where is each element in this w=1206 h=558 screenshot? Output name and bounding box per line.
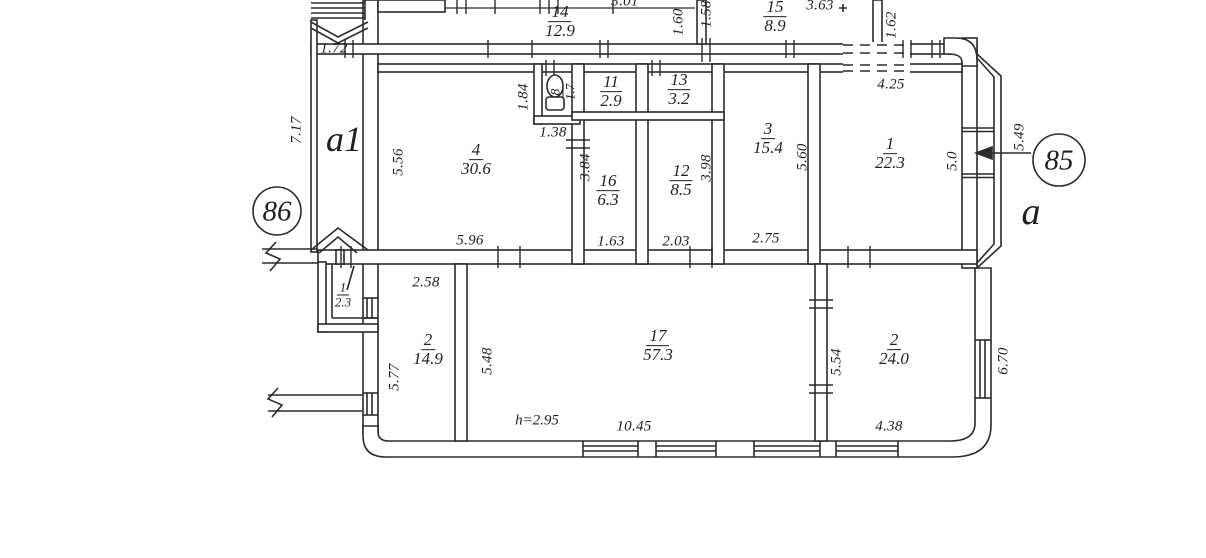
room-area: 57.3 <box>643 347 673 365</box>
room-number: 2 <box>887 331 902 350</box>
plus-mark <box>839 4 847 12</box>
room-number: 1 <box>883 135 898 154</box>
room-label-14: 14 12.9 <box>545 3 575 41</box>
room-label-13: 13 3.2 <box>668 71 691 109</box>
room-area: 8.5 <box>670 182 691 200</box>
dim-room16-left: 3.84 <box>579 153 594 180</box>
room-area: 8.9 <box>764 18 785 36</box>
room-label-8: 8 1.7 <box>548 84 577 100</box>
room-area: 6.3 <box>597 192 618 210</box>
dim-corridor-162: 1.62 <box>885 11 900 38</box>
room-label-11: 11 2.9 <box>600 73 622 111</box>
dim-a1-width: 1.72 <box>320 42 347 57</box>
room-number: 14 <box>549 3 572 22</box>
dim-room15-width: 3.63 <box>806 0 833 14</box>
ceiling-height-note: h=2.95 <box>515 414 559 429</box>
room-number: 3 <box>761 120 776 139</box>
dim-room17-left: 5.48 <box>481 347 496 374</box>
room-label-2-left: 2 14.9 <box>413 331 443 369</box>
axis-marker-86: 86 <box>263 198 292 227</box>
room-area: 2.9 <box>600 93 621 111</box>
dim-room17-bottom: 10.45 <box>616 420 651 435</box>
room-label-17: 17 57.3 <box>643 327 673 365</box>
room-number: 11 <box>600 73 622 92</box>
room-label-2-right: 2 24.0 <box>879 331 909 369</box>
floor-plan-canvas: 86 85 a1 a 14 12.9 15 8.9 8 1.7 11 2.9 1… <box>0 0 1206 558</box>
room-area: 22.3 <box>875 155 905 173</box>
room-number: 12 <box>670 162 693 181</box>
section-letter-a1: a1 <box>326 121 362 157</box>
dim-a1-height: 7.17 <box>290 116 305 143</box>
room-number: 15 <box>764 0 787 18</box>
room-area: 15.4 <box>753 140 783 158</box>
room-label-12: 12 8.5 <box>670 162 693 200</box>
dim-room2left-left: 5.77 <box>388 363 403 390</box>
room-label-1-small: 1 2.3 <box>335 280 351 309</box>
room-label-16: 16 6.3 <box>597 172 620 210</box>
section-letter-a: a <box>1022 193 1041 231</box>
room-area: 24.0 <box>879 351 909 369</box>
dim-bay-outer: 5.49 <box>1013 123 1028 150</box>
room-label-1-main: 1 22.3 <box>875 135 905 173</box>
dim-top-left: 3.01 <box>611 0 638 10</box>
room-area: 3.2 <box>668 91 689 109</box>
room-area: 14.9 <box>413 351 443 369</box>
room-area: 30.6 <box>461 161 491 179</box>
dim-right-lower: 6.70 <box>997 347 1012 374</box>
dim-room8-height: 1.84 <box>517 83 532 110</box>
dim-room16-bottom: 1.63 <box>597 235 624 250</box>
dim-corridor-158: 1.58 <box>700 0 715 27</box>
dim-room12-right: 3.98 <box>700 154 715 181</box>
room-number: 13 <box>668 71 691 90</box>
room-area: 2.3 <box>335 296 351 310</box>
room-area: 12.9 <box>545 23 575 41</box>
room-number: 16 <box>597 172 620 191</box>
dim-room3-bottom: 2.75 <box>752 232 779 247</box>
dim-room2right-bottom: 4.38 <box>875 420 902 435</box>
room-area: 1.7 <box>564 84 578 100</box>
dim-room12-bottom: 2.03 <box>662 235 689 250</box>
dim-room2left-top: 2.58 <box>412 276 439 291</box>
axis-marker-85: 85 <box>1045 147 1074 176</box>
dim-room4-left: 5.56 <box>392 148 407 175</box>
dim-room1-top: 4.25 <box>877 78 904 93</box>
room-number: 4 <box>469 141 484 160</box>
room-label-4: 4 30.6 <box>461 141 491 179</box>
dim-room8-width: 1.38 <box>539 126 566 141</box>
room-number: 2 <box>421 331 436 350</box>
room-label-15: 15 8.9 <box>764 0 787 36</box>
dim-bay-inner: 5.0 <box>946 151 961 171</box>
room-label-3: 3 15.4 <box>753 120 783 158</box>
dim-room3-right: 5.60 <box>796 143 811 170</box>
dim-room17-right: 5.54 <box>830 348 845 375</box>
dim-corridor-160: 1.60 <box>672 8 687 35</box>
room-number: 8 <box>548 86 563 99</box>
dim-room4-bottom: 5.96 <box>456 234 483 249</box>
room-number: 17 <box>647 327 670 346</box>
room-number: 1 <box>337 280 350 295</box>
